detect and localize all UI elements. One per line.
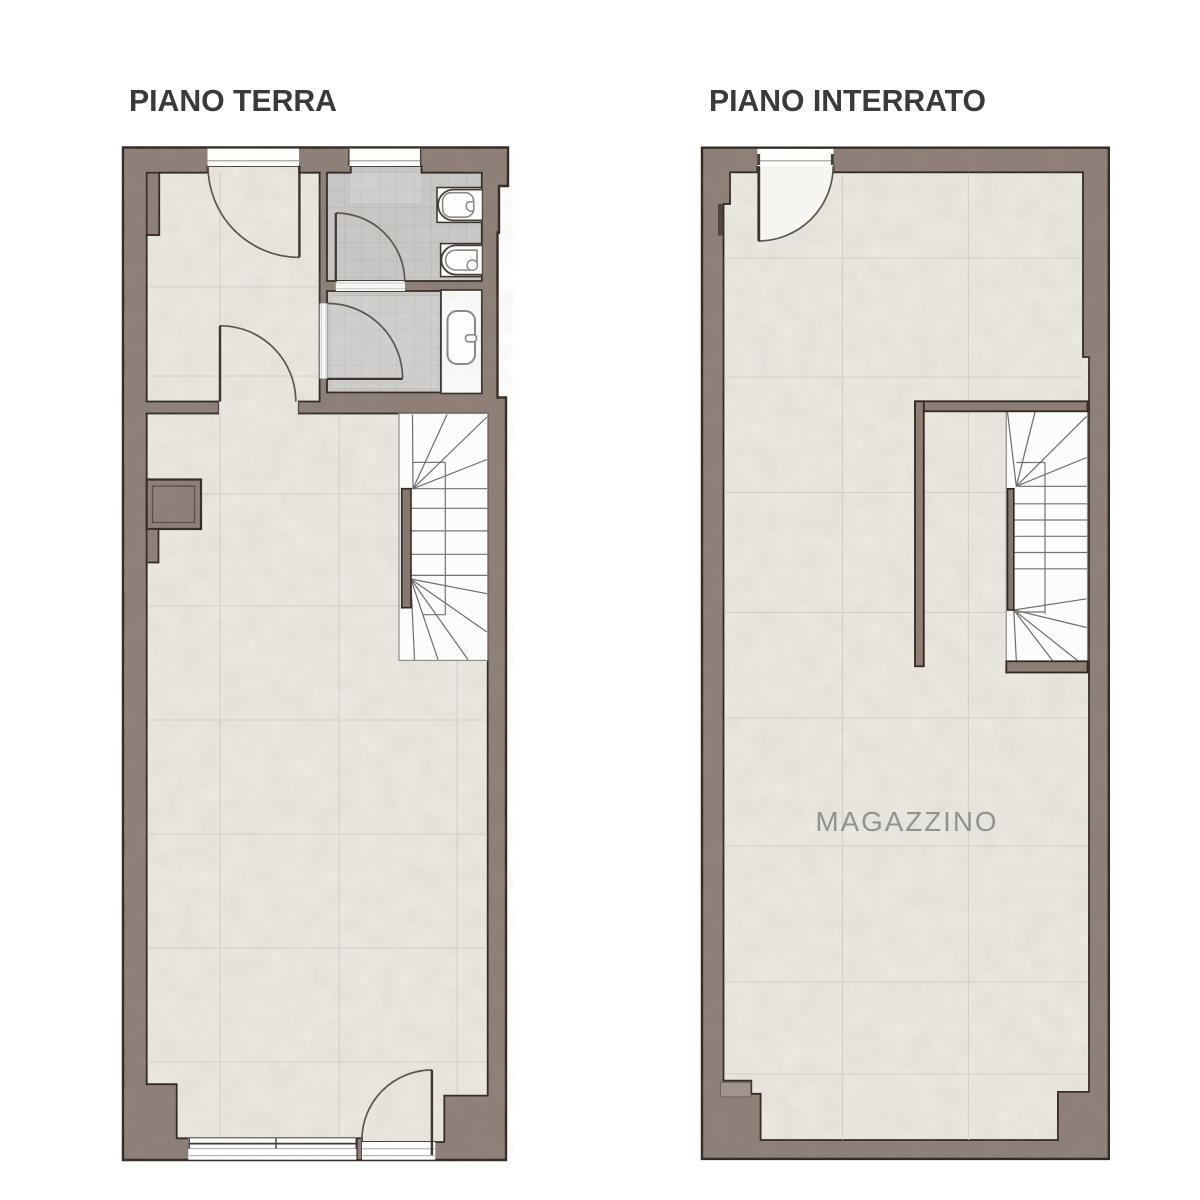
svg-text:MAGAZZINO: MAGAZZINO <box>816 806 999 837</box>
svg-text:PIANO TERRA: PIANO TERRA <box>129 83 337 118</box>
svg-text:PIANO INTERRATO: PIANO INTERRATO <box>709 83 986 118</box>
